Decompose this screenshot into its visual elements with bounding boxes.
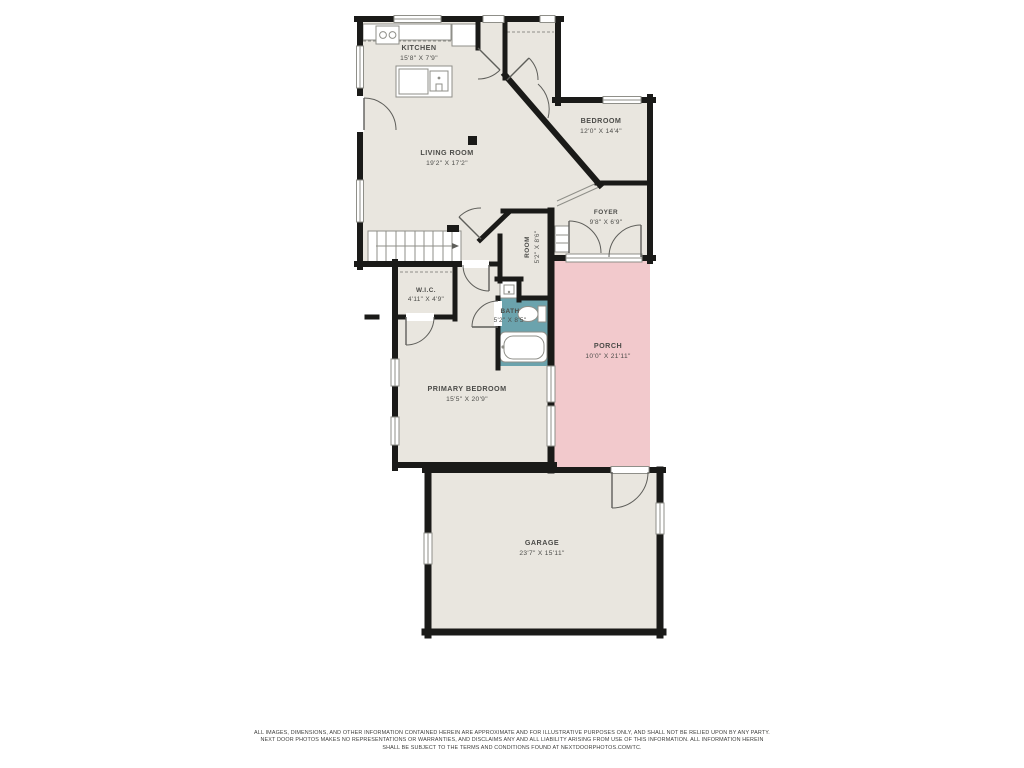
disclaimer-line: NEXT DOOR PHOTOS MAKES NO REPRESENTATION… (0, 737, 1024, 744)
svg-text:PRIMARY BEDROOM: PRIMARY BEDROOM (427, 384, 506, 393)
svg-text:10'0" X 21'11": 10'0" X 21'11" (585, 353, 631, 360)
window (547, 366, 555, 402)
window (540, 16, 555, 23)
island-range (399, 69, 428, 94)
floor-fills (360, 22, 660, 632)
toilet-tank (538, 306, 546, 322)
svg-text:5'2" X 8'5": 5'2" X 8'5" (494, 317, 527, 324)
bath-sink-icon (500, 281, 518, 298)
svg-text:9'8" X 6'9": 9'8" X 6'9" (590, 219, 623, 226)
svg-text:23'7" X 15'11": 23'7" X 15'11" (519, 550, 565, 557)
svg-text:12'0" X 14'4": 12'0" X 14'4" (580, 128, 622, 135)
window (391, 359, 399, 386)
window (547, 406, 555, 446)
svg-text:KITCHEN: KITCHEN (401, 43, 436, 52)
svg-text:BATH: BATH (500, 308, 519, 315)
newel-post (447, 225, 459, 232)
window (603, 97, 641, 104)
floor-plan-page: KITCHEN 15'8" X 7'9" LIVING ROOM 19'2" X… (0, 0, 1024, 768)
refrigerator-icon (452, 24, 476, 46)
svg-text:5'2" X 8'6": 5'2" X 8'6" (534, 231, 541, 264)
svg-text:15'5" X 20'9": 15'5" X 20'9" (446, 396, 488, 403)
svg-text:15'8" X 7'9": 15'8" X 7'9" (400, 55, 438, 62)
disclaimer-line: ALL IMAGES, DIMENSIONS, AND OTHER INFORM… (0, 730, 1024, 737)
island-sink-drain (438, 77, 441, 80)
window (394, 16, 441, 23)
svg-text:FOYER: FOYER (594, 209, 618, 216)
island-sink-faucet (436, 84, 442, 91)
window (357, 46, 364, 88)
stairs (368, 225, 461, 262)
svg-text:BEDROOM: BEDROOM (581, 116, 622, 125)
window (357, 180, 364, 222)
svg-text:W.I.C.: W.I.C. (416, 287, 436, 294)
svg-text:4'11" X 4'9": 4'11" X 4'9" (408, 296, 444, 303)
bathtub-faucet (501, 345, 504, 348)
svg-text:ROOM: ROOM (524, 236, 531, 258)
svg-text:LIVING ROOM: LIVING ROOM (420, 148, 473, 157)
svg-text:GARAGE: GARAGE (525, 538, 559, 547)
window (424, 533, 432, 564)
window (391, 417, 399, 445)
disclaimer: ALL IMAGES, DIMENSIONS, AND OTHER INFORM… (0, 730, 1024, 752)
foyer-closet-shelves (555, 226, 569, 252)
floor-plan-image: KITCHEN 15'8" X 7'9" LIVING ROOM 19'2" X… (0, 0, 1024, 768)
entry-opening (483, 16, 504, 23)
svg-text:19'2" X 17'2": 19'2" X 17'2" (426, 160, 468, 167)
support-column (468, 136, 477, 145)
bath-sink-drain (508, 291, 510, 293)
svg-text:PORCH: PORCH (594, 341, 622, 350)
window (656, 503, 664, 534)
porch-floor (553, 258, 650, 470)
disclaimer-line: SHALL BE SUBJECT TO THE TERMS AND CONDIT… (0, 745, 1024, 752)
front-entry-threshold (566, 254, 642, 262)
